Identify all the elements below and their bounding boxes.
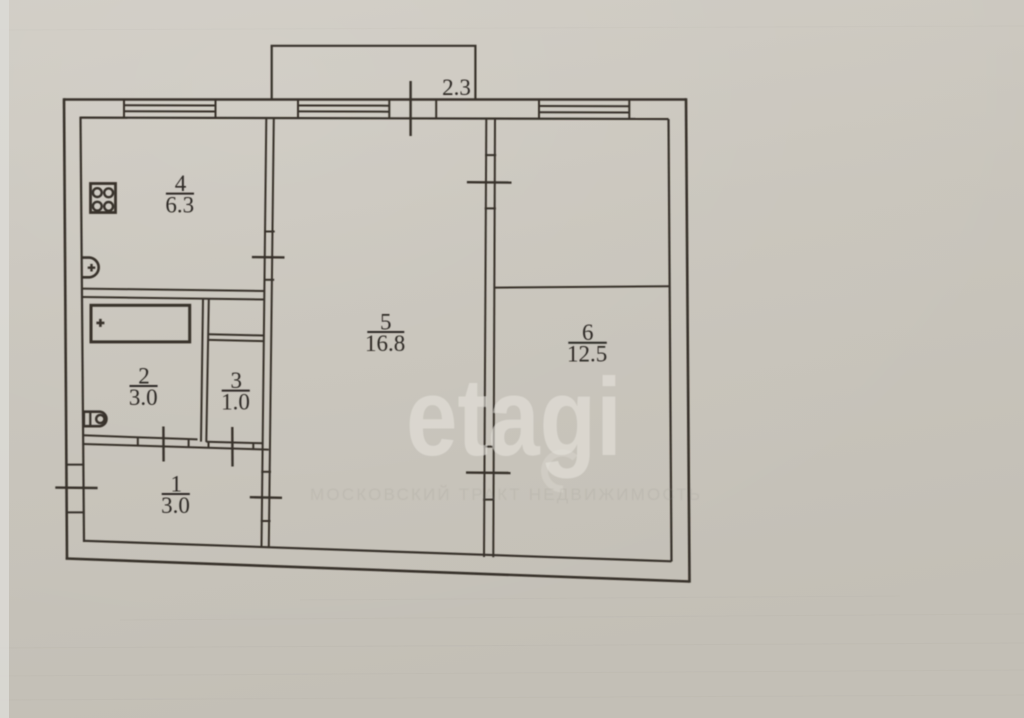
- svg-text:etagi: etagi: [406, 355, 622, 478]
- svg-text:2.3: 2.3: [442, 75, 471, 100]
- svg-text:3.0: 3.0: [129, 385, 158, 410]
- svg-text:1.0: 1.0: [221, 389, 250, 414]
- svg-text:6.3: 6.3: [165, 192, 194, 217]
- svg-text:3.0: 3.0: [161, 493, 190, 518]
- svg-text:16.8: 16.8: [365, 331, 405, 356]
- svg-text:МОСКОВСКИЙ ТРАКТ НЕДВИЖИМОСТЬ: МОСКОВСКИЙ ТРАКТ НЕДВИЖИМОСТЬ: [310, 485, 700, 504]
